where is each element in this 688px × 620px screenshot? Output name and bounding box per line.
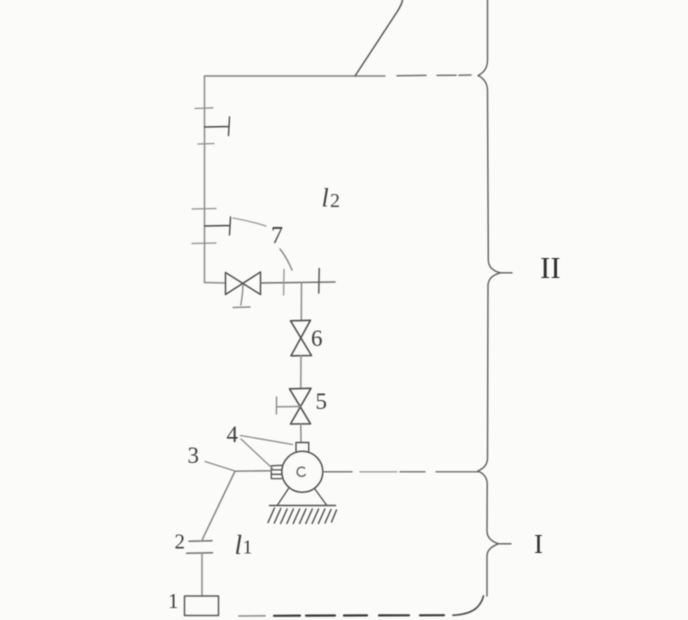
svg-text:2: 2 xyxy=(175,530,186,554)
svg-text:II: II xyxy=(540,250,561,285)
svg-text:3: 3 xyxy=(188,443,200,468)
svg-text:l: l xyxy=(235,530,243,560)
svg-text:1: 1 xyxy=(168,589,179,613)
svg-text:6: 6 xyxy=(311,326,323,351)
svg-text:2: 2 xyxy=(330,190,340,212)
svg-text:l: l xyxy=(322,184,329,213)
svg-text:5: 5 xyxy=(316,389,328,414)
svg-text:I: I xyxy=(534,529,543,559)
svg-text:7: 7 xyxy=(271,223,283,249)
svg-text:1: 1 xyxy=(243,537,253,559)
svg-text:4: 4 xyxy=(227,422,239,447)
